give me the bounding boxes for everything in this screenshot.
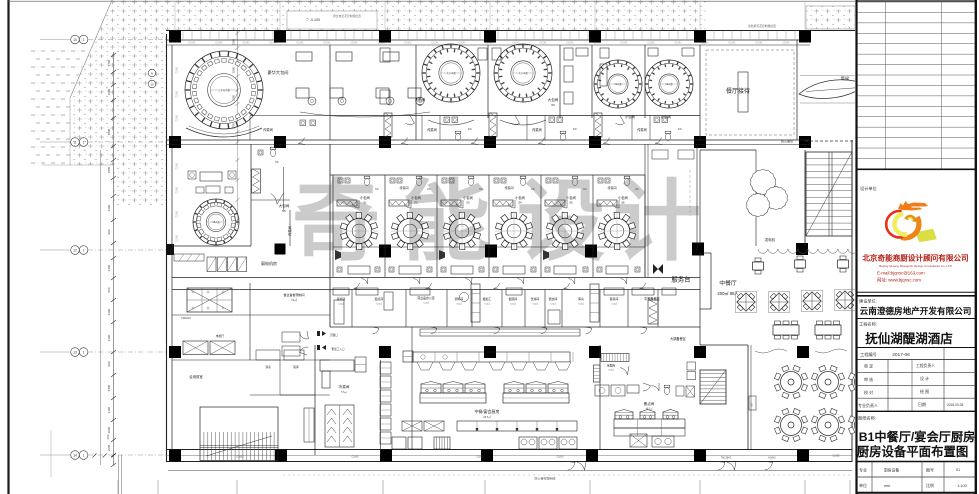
- svg-text:1: 1: [83, 248, 85, 252]
- svg-text:03: 03: [466, 201, 470, 205]
- svg-text:5280: 5280: [232, 66, 236, 73]
- svg-text:冷菜间: 冷菜间: [339, 384, 350, 389]
- svg-text:C1041: C1041: [431, 42, 439, 45]
- svg-text:3000: 3000: [107, 426, 111, 433]
- svg-text:C1833: C1833: [236, 456, 244, 459]
- svg-text:Beijing Qineng Shangchu Desig: Beijing Qineng Shangchu Design Consultan…: [879, 264, 952, 268]
- svg-text:中餐/宴会厨房: 中餐/宴会厨房: [474, 408, 499, 414]
- svg-text:校 对: 校 对: [864, 389, 873, 395]
- svg-text:北京奇能商厨设计顾问有限公司: 北京奇能商厨设计顾问有限公司: [862, 253, 968, 263]
- svg-text:C1041: C1041: [404, 42, 412, 45]
- svg-text:设 计: 设 计: [920, 375, 929, 381]
- svg-text:防火卷帘: 防火卷帘: [781, 139, 793, 144]
- svg-text:C1041: C1041: [323, 42, 331, 45]
- svg-text:13: 13: [73, 350, 77, 354]
- svg-text:等候: 等候: [841, 75, 850, 82]
- svg-text:3300: 3300: [107, 308, 111, 315]
- svg-text:KB: KB: [751, 403, 754, 407]
- svg-text:C1041: C1041: [176, 114, 179, 122]
- svg-text:KC: KC: [573, 127, 577, 131]
- svg-text:库房: 库房: [578, 296, 584, 301]
- svg-text:碗库: 碗库: [293, 365, 299, 369]
- svg-text:10: 10: [150, 82, 154, 86]
- svg-text:大锅备餐区: 大锅备餐区: [670, 336, 687, 341]
- svg-text:200㎡ 88人: 200㎡ 88人: [717, 290, 739, 296]
- svg-text:回餐口: 回餐口: [330, 333, 338, 337]
- svg-text:传菜间: 传菜间: [399, 185, 408, 190]
- svg-text:1980: 1980: [107, 88, 111, 95]
- svg-text:大包间: 大包间: [279, 203, 290, 208]
- svg-text:设计单位: 设计单位: [860, 185, 877, 192]
- svg-text:日期: 日期: [918, 401, 926, 407]
- svg-text:洗消间: 洗消间: [531, 296, 540, 301]
- svg-text:C1041: C1041: [728, 42, 736, 45]
- svg-text:器具间: 器具间: [610, 296, 619, 301]
- svg-text:C1041: C1041: [647, 42, 655, 45]
- svg-text:面点间: 面点间: [375, 296, 384, 301]
- svg-text:KC: KC: [531, 187, 535, 191]
- svg-text:2017-06: 2017-06: [892, 352, 910, 358]
- svg-text:餐厅接待: 餐厅接待: [726, 87, 750, 95]
- svg-text:C1041: C1041: [755, 42, 763, 45]
- svg-text:TM12B42: TM12B42: [721, 457, 732, 460]
- svg-text:1: 1: [83, 38, 85, 42]
- svg-text:8400: 8400: [107, 384, 111, 391]
- svg-text:500: 500: [107, 287, 111, 292]
- svg-text:2380: 2380: [232, 38, 236, 45]
- svg-text:900: 900: [107, 361, 111, 366]
- svg-text:专业: 专业: [859, 467, 867, 473]
- svg-text:02: 02: [418, 103, 422, 107]
- svg-text:03: 03: [551, 103, 555, 107]
- svg-text:C1041: C1041: [242, 42, 250, 45]
- svg-text:900: 900: [107, 229, 111, 234]
- svg-text:4500: 4500: [107, 128, 111, 135]
- svg-text:B1中餐厅/宴会厅厨房: B1中餐厅/宴会厅厨房: [859, 429, 975, 444]
- svg-text:01: 01: [363, 201, 367, 205]
- svg-text:C1041: C1041: [176, 210, 179, 218]
- svg-text:传菜间: 传菜间: [287, 226, 292, 236]
- svg-text:传菜间: 传菜间: [263, 127, 273, 132]
- svg-text:61㎡: 61㎡: [291, 298, 297, 302]
- svg-text:KC: KC: [678, 127, 682, 131]
- svg-text:3300: 3300: [107, 334, 111, 341]
- svg-text:电梯厅: 电梯厅: [216, 334, 225, 338]
- svg-text:建设单位:: 建设单位:: [859, 298, 877, 305]
- svg-text:02: 02: [414, 201, 418, 205]
- svg-text:C1853: C1853: [832, 455, 840, 458]
- svg-text:专业负责人: 专业负责人: [858, 402, 878, 408]
- svg-text:工程编号: 工程编号: [860, 351, 877, 358]
- svg-text:05: 05: [569, 201, 573, 205]
- svg-text:1: 1: [83, 350, 85, 354]
- svg-text:工程名称:: 工程名称:: [859, 321, 877, 328]
- svg-text:小包间: 小包间: [618, 195, 628, 200]
- svg-text:小包间: 小包间: [463, 195, 473, 200]
- svg-text:璃色拆天花控制箱位置: 璃色拆天花控制箱位置: [748, 24, 776, 28]
- svg-text:C1041: C1041: [620, 42, 628, 45]
- svg-text:C1833: C1833: [556, 456, 564, 459]
- svg-text:审 定: 审 定: [864, 363, 873, 369]
- svg-text:小包间: 小包间: [566, 195, 576, 200]
- svg-text:烟酒间: 烟酒间: [509, 296, 518, 301]
- svg-text:1:100: 1:100: [957, 484, 967, 488]
- svg-text:大包间: 大包间: [548, 97, 559, 102]
- svg-text:服务台: 服务台: [671, 275, 690, 284]
- svg-text:发电机: 发电机: [765, 237, 776, 242]
- svg-text:KC: KC: [479, 187, 483, 191]
- svg-text:能: 能: [402, 172, 490, 271]
- svg-text:图纸名称:: 图纸名称:: [858, 415, 876, 422]
- svg-text:300: 300: [106, 434, 110, 439]
- svg-text:KC: KC: [468, 127, 472, 131]
- svg-text:KC: KC: [427, 187, 431, 191]
- svg-text:6400: 6400: [107, 264, 111, 271]
- svg-text:C1041: C1041: [176, 66, 179, 74]
- svg-text:C1041: C1041: [296, 42, 304, 45]
- svg-text:小包间: 小包间: [411, 195, 421, 200]
- svg-text:06: 06: [621, 201, 625, 205]
- svg-text:防火卷帘控制线: 防火卷帘控制线: [534, 476, 555, 481]
- svg-text:绘 图: 绘 图: [920, 388, 929, 394]
- svg-text:C1833: C1833: [351, 456, 359, 459]
- svg-text:米面库: 米面库: [607, 364, 616, 368]
- svg-text:1550: 1550: [107, 166, 111, 173]
- svg-text:1: 1: [83, 140, 85, 144]
- svg-text:大包间: 大包间: [415, 97, 426, 102]
- svg-text:12: 12: [73, 248, 77, 252]
- svg-text:中餐厅: 中餐厅: [719, 279, 737, 287]
- svg-text:C1041: C1041: [350, 42, 358, 45]
- svg-text:网址: www.bjqnsc.com: 网址: www.bjqnsc.com: [877, 277, 921, 284]
- svg-text:调料间: 调料间: [455, 296, 464, 301]
- svg-text:单位: 单位: [859, 482, 867, 488]
- svg-text:更衣间: 更衣间: [549, 296, 558, 301]
- svg-text:2018-03-05: 2018-03-05: [947, 403, 964, 407]
- svg-text:传菜间: 传菜间: [504, 185, 513, 190]
- svg-text:▽ -0.100: ▽ -0.100: [306, 18, 320, 22]
- svg-text:小包间: 小包间: [661, 114, 672, 119]
- svg-text:5.5㎡: 5.5㎡: [341, 390, 347, 394]
- svg-text:弱电机房: 弱电机房: [261, 260, 277, 266]
- svg-text:粗加工入口: 粗加工入口: [332, 347, 345, 351]
- svg-text:E-mail:bjqnsc@163.com: E-mail:bjqnsc@163.com: [877, 271, 925, 276]
- svg-text:合用前室: 合用前室: [189, 374, 203, 379]
- svg-text:厨房设备平面布置图: 厨房设备平面布置图: [857, 444, 969, 459]
- svg-text:3300: 3300: [107, 204, 111, 211]
- svg-text:消毒: 消毒: [265, 365, 271, 369]
- svg-text:C1833: C1833: [476, 456, 484, 459]
- svg-text:小包间: 小包间: [360, 195, 370, 200]
- svg-text:mm: mm: [884, 484, 890, 488]
- svg-text:11: 11: [73, 140, 77, 144]
- svg-text:图号: 图号: [926, 467, 934, 473]
- svg-text:粗加工: 粗加工: [483, 296, 492, 301]
- svg-text:01: 01: [956, 468, 960, 472]
- svg-text:C1041: C1041: [215, 42, 223, 45]
- svg-text:5700: 5700: [107, 59, 111, 66]
- svg-text:抚仙湖醍湖酒店: 抚仙湖醍湖酒店: [865, 331, 953, 346]
- svg-text:C1041: C1041: [176, 234, 179, 242]
- svg-text:厨房设备: 厨房设备: [884, 468, 899, 473]
- svg-text:C1041: C1041: [674, 42, 682, 45]
- svg-text:C1041: C1041: [176, 90, 179, 98]
- svg-text:传菜间: 传菜间: [637, 127, 647, 132]
- svg-text:C1041: C1041: [539, 42, 547, 45]
- svg-text:3000: 3000: [107, 444, 111, 451]
- svg-text:KC: KC: [275, 160, 279, 164]
- svg-text:云南澄德房地产开发有限公司: 云南澄德房地产开发有限公司: [860, 305, 972, 316]
- svg-text:C1041: C1041: [188, 42, 196, 45]
- svg-text:FM1824: FM1824: [181, 316, 191, 320]
- svg-text:M1842: M1842: [768, 457, 776, 460]
- svg-text:1980: 1980: [232, 94, 236, 101]
- svg-text:KC: KC: [375, 187, 379, 191]
- svg-text:C1041: C1041: [176, 162, 179, 170]
- svg-text:传菜间: 传菜间: [427, 127, 437, 132]
- svg-text:小包间: 小包间: [625, 114, 636, 119]
- svg-text:C1041: C1041: [566, 42, 574, 45]
- svg-text:小包间: 小包间: [515, 195, 525, 200]
- svg-text:键位电天花控制箱位置: 键位电天花控制箱位置: [333, 14, 361, 18]
- svg-text:28.5㎡: 28.5㎡: [483, 415, 491, 419]
- svg-text:KC: KC: [635, 187, 639, 191]
- svg-text:传菜间: 传菜间: [607, 185, 616, 190]
- svg-text:10: 10: [73, 38, 77, 42]
- svg-text:C1041: C1041: [458, 42, 466, 45]
- svg-text:KC: KC: [583, 187, 587, 191]
- svg-text:审 核: 审 核: [864, 376, 873, 382]
- svg-text:比例: 比例: [926, 482, 934, 488]
- svg-text:传菜间: 传菜间: [532, 127, 542, 132]
- svg-text:营业品办公室: 营业品办公室: [417, 295, 434, 300]
- svg-text:C1041: C1041: [176, 186, 179, 194]
- svg-text:C1041: C1041: [782, 42, 790, 45]
- svg-text:04: 04: [518, 201, 522, 205]
- svg-text:1150: 1150: [107, 406, 111, 413]
- svg-text:餐企备餐预制间: 餐企备餐预制间: [283, 292, 304, 297]
- svg-text:蛋点间: 蛋点间: [644, 401, 655, 406]
- svg-text:豪华大包间: 豪华大包间: [268, 69, 289, 76]
- svg-text:14: 14: [73, 453, 77, 457]
- svg-text:05: 05: [282, 209, 286, 213]
- svg-text:工程负责人: 工程负责人: [916, 363, 935, 368]
- svg-text:1: 1: [83, 453, 85, 457]
